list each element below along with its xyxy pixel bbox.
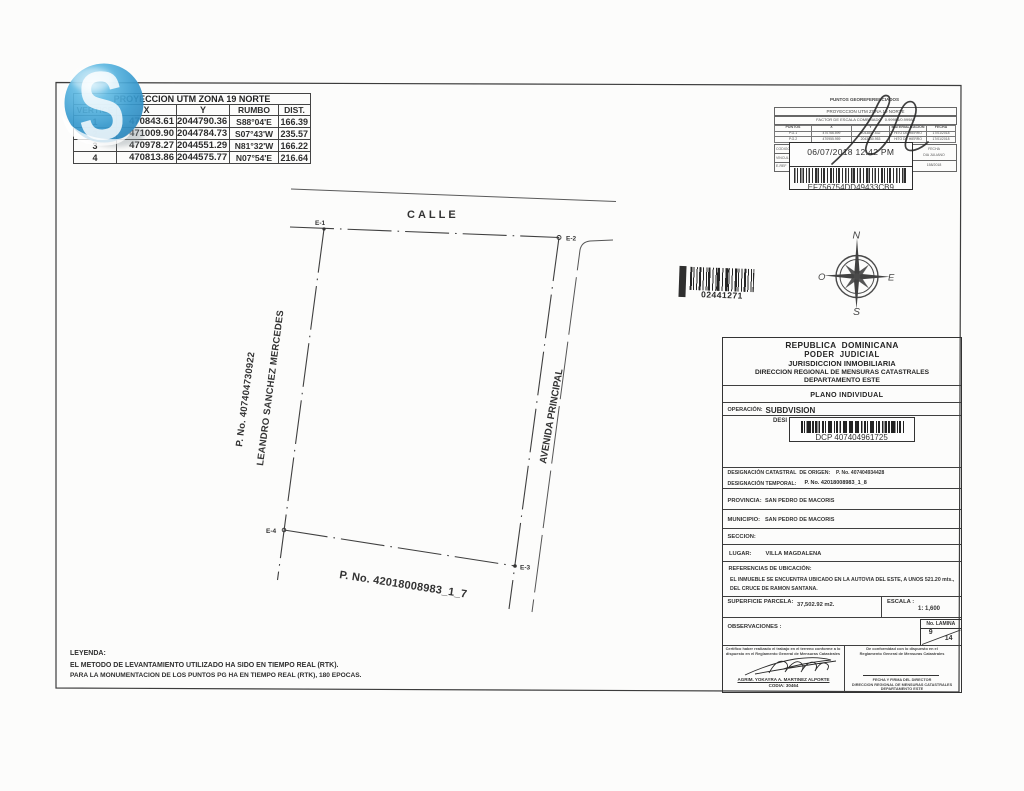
svg-text:S: S (853, 306, 860, 318)
svg-text:AVENIDA PRINCIPAL: AVENIDA PRINCIPAL (538, 368, 566, 464)
svg-text:E: E (888, 273, 895, 284)
svg-text:P. No. 407404730922: P. No. 407404730922 (234, 351, 257, 447)
svg-text:N: N (853, 230, 861, 242)
svg-text:E-4: E-4 (266, 528, 277, 535)
svg-text:O: O (818, 272, 826, 283)
svg-text:E-2: E-2 (566, 236, 577, 243)
svg-text:LEANDRO SANCHEZ MERCEDES: LEANDRO SANCHEZ MERCEDES (255, 309, 286, 466)
svg-text:E-3: E-3 (520, 565, 531, 572)
svg-text:CALLE: CALLE (407, 209, 459, 221)
svg-text:P. No. 42018008983_1_7: P. No. 42018008983_1_7 (339, 569, 468, 601)
svg-text:E-1: E-1 (315, 220, 326, 227)
